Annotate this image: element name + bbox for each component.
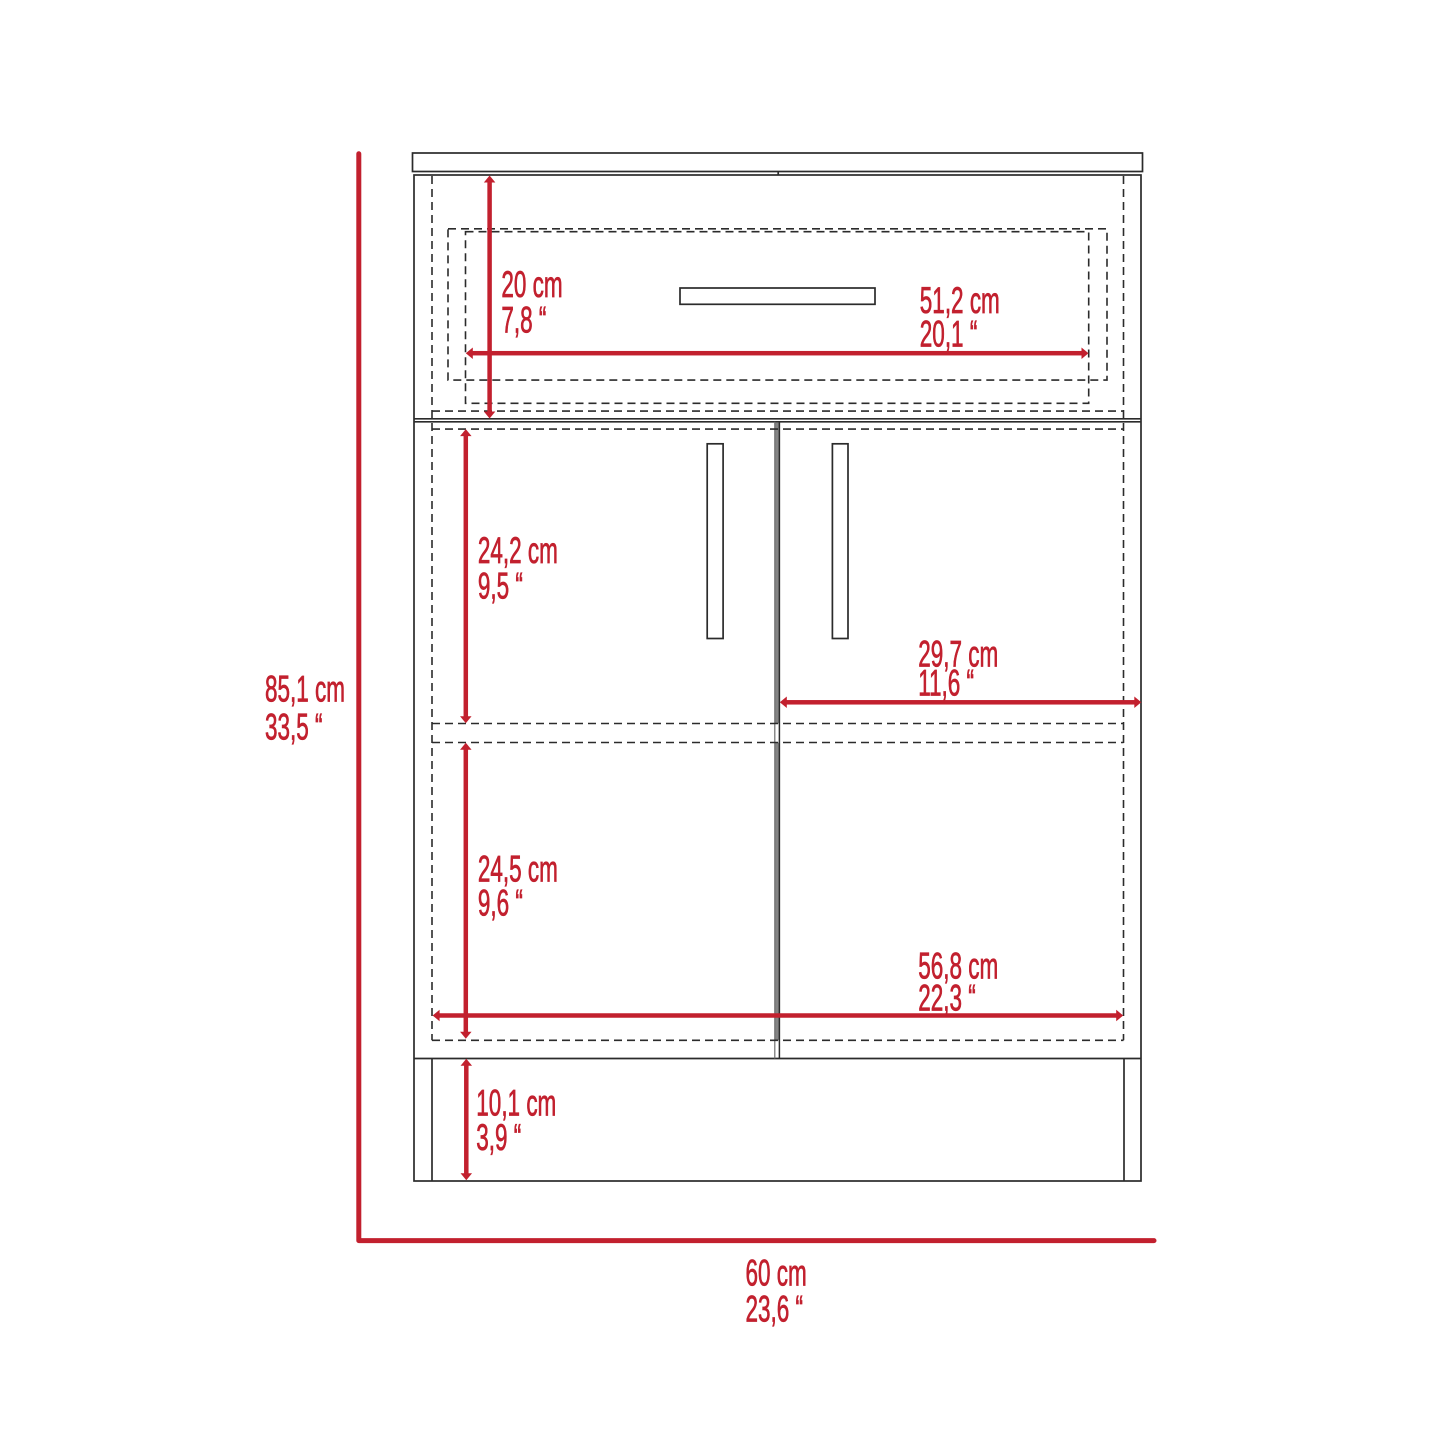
svg-text:85,1 cm: 85,1 cm [265,667,345,709]
svg-text:33,5 “: 33,5 “ [265,705,323,747]
svg-text:9,6 “: 9,6 “ [478,882,523,924]
svg-text:11,6 “: 11,6 “ [918,662,974,704]
svg-text:22,3 “: 22,3 “ [918,976,976,1018]
svg-text:23,6 “: 23,6 “ [746,1287,804,1329]
svg-text:20,1 “: 20,1 “ [920,313,978,355]
svg-text:3,9 “: 3,9 “ [476,1116,521,1158]
svg-text:7,8 “: 7,8 “ [501,299,546,341]
svg-text:9,5 “: 9,5 “ [478,564,523,606]
